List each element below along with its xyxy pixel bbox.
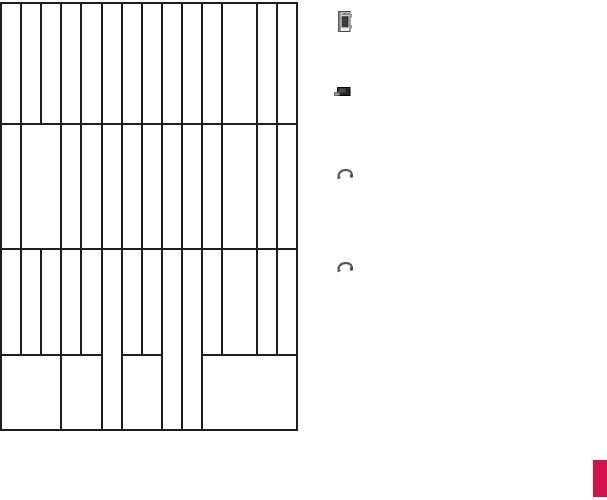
grid-cell <box>1 3 21 124</box>
swoosh-arrow-icon <box>337 166 353 180</box>
grid-cell <box>202 355 297 430</box>
grid-cell <box>41 3 61 124</box>
grid-cell <box>257 249 277 355</box>
grid-cell <box>222 124 257 249</box>
grid-cell <box>257 124 277 249</box>
grid-cell <box>162 124 182 249</box>
grid-cell <box>202 3 222 124</box>
grid-cell <box>202 249 222 355</box>
grid-cell <box>21 3 41 124</box>
grid-cell <box>81 3 102 124</box>
grid-cell <box>142 3 162 124</box>
grid-cell <box>21 249 41 355</box>
grid-cell <box>122 355 162 430</box>
grid-cell <box>202 124 222 249</box>
handheld-device-icon <box>337 11 352 32</box>
grid-cell <box>162 3 182 124</box>
grid-cell <box>61 3 81 124</box>
grid-cell <box>257 3 277 124</box>
grid-cell <box>222 3 257 124</box>
battery-icon <box>334 86 351 98</box>
grid-cell <box>102 249 122 430</box>
grid-cell <box>182 124 202 249</box>
page-canvas <box>0 0 607 500</box>
grid-cell <box>277 3 297 124</box>
grid-cell <box>222 249 257 355</box>
grid-cell <box>122 249 142 355</box>
grid-of-cells <box>0 0 607 500</box>
grid-cell <box>61 249 81 355</box>
grid-cell <box>1 124 21 249</box>
grid-cell <box>81 249 102 355</box>
swoosh-arrow-icon <box>337 259 353 273</box>
grid-cell <box>41 249 61 355</box>
grid-cell <box>122 124 142 249</box>
grid-cell <box>142 124 162 249</box>
grid-cell <box>61 355 102 430</box>
grid-cell <box>102 3 122 124</box>
grid-cell <box>162 249 182 430</box>
grid-cell <box>277 124 297 249</box>
grid-cell <box>1 249 21 355</box>
grid-cell <box>61 124 81 249</box>
grid-cell <box>277 249 297 355</box>
grid-cell <box>182 3 202 124</box>
grid-cell <box>182 249 202 430</box>
grid-cell <box>21 124 61 249</box>
grid-cell <box>102 124 122 249</box>
grid-cell <box>142 249 162 355</box>
grid-cell <box>1 355 61 430</box>
grid-cell <box>81 124 102 249</box>
accent-rect <box>593 460 607 497</box>
grid-cell <box>122 3 142 124</box>
